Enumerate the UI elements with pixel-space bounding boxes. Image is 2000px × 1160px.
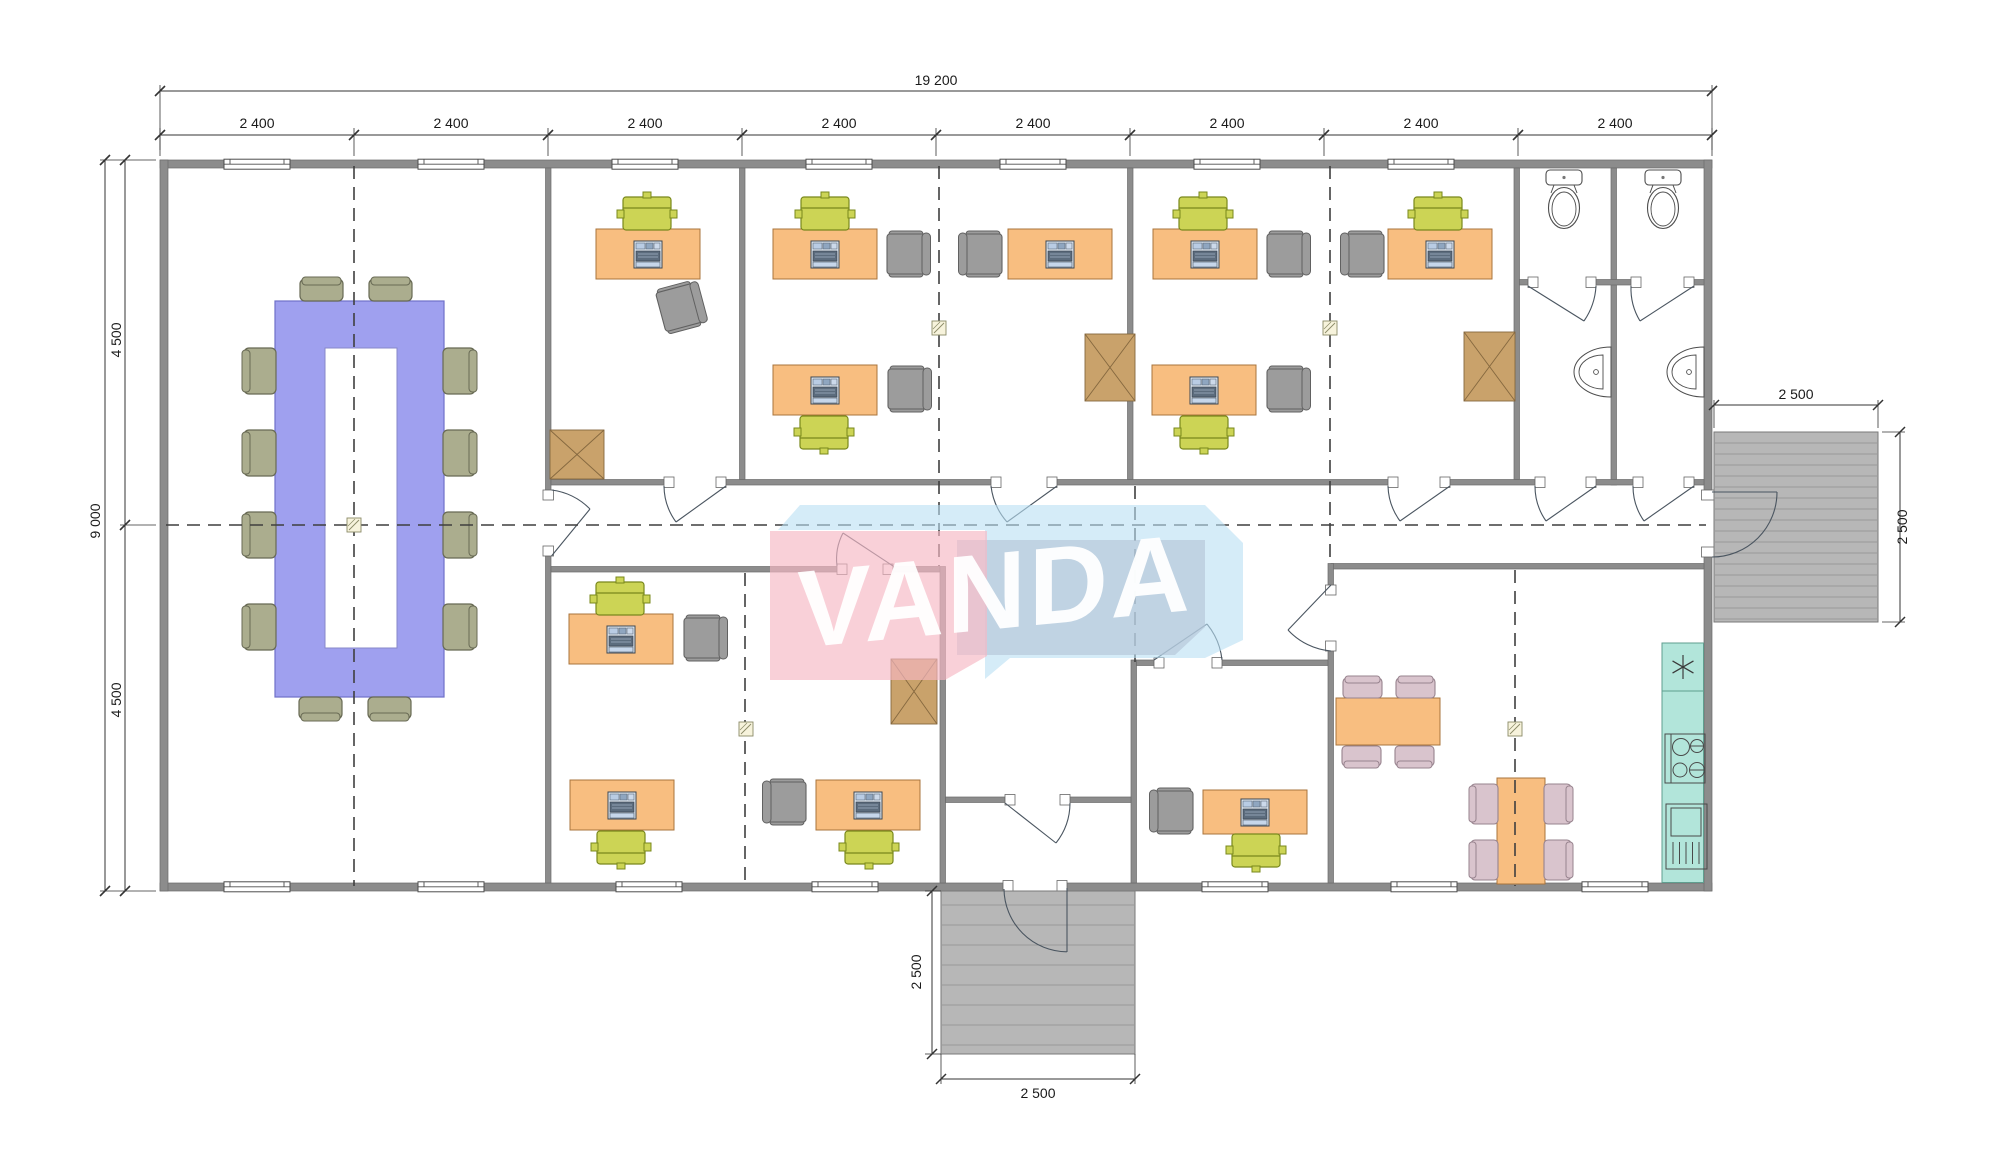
svg-text:2 400: 2 400	[1209, 115, 1244, 131]
svg-text:2 400: 2 400	[821, 115, 856, 131]
svg-text:2 400: 2 400	[1403, 115, 1438, 131]
svg-text:2 400: 2 400	[1015, 115, 1050, 131]
svg-text:9 000: 9 000	[87, 503, 103, 538]
svg-text:2 400: 2 400	[239, 115, 274, 131]
svg-text:2 400: 2 400	[627, 115, 662, 131]
svg-text:2 500: 2 500	[1778, 386, 1813, 402]
svg-text:2 400: 2 400	[1597, 115, 1632, 131]
svg-text:2 500: 2 500	[1020, 1085, 1055, 1101]
svg-text:2 500: 2 500	[1894, 509, 1910, 544]
svg-text:2 500: 2 500	[908, 954, 924, 989]
svg-text:19 200: 19 200	[915, 72, 958, 88]
svg-text:4 500: 4 500	[108, 322, 124, 357]
svg-text:2 400: 2 400	[433, 115, 468, 131]
svg-text:4 500: 4 500	[108, 682, 124, 717]
